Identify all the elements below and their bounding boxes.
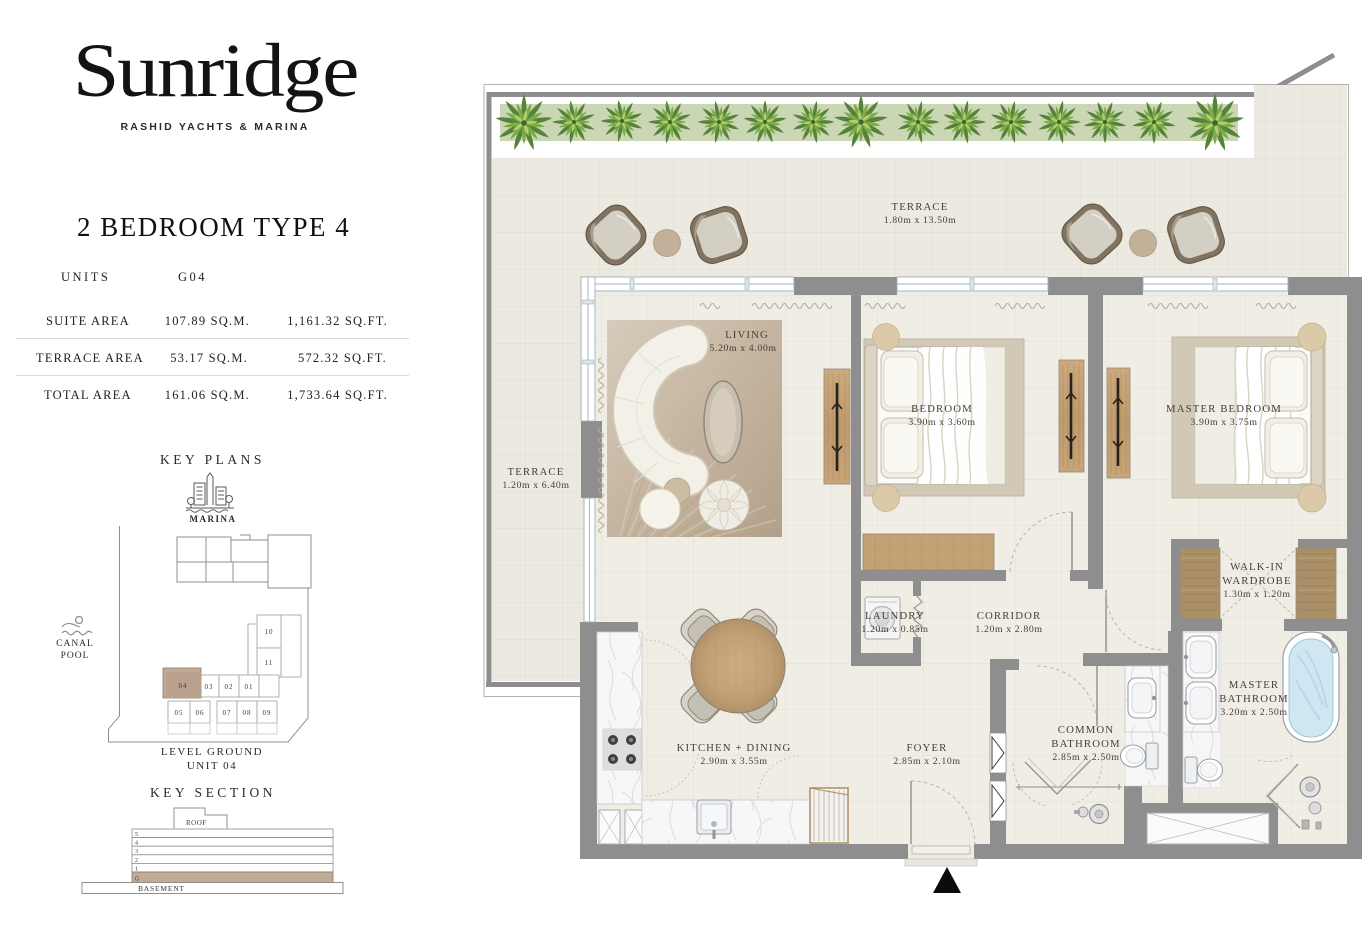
- svg-text:3.90m x 3.75m: 3.90m x 3.75m: [1190, 417, 1257, 428]
- svg-text:TERRACE: TERRACE: [892, 201, 949, 213]
- svg-text:WALK-IN: WALK-IN: [1230, 561, 1284, 573]
- svg-text:FOYER: FOYER: [907, 742, 948, 754]
- svg-text:1.20m x 6.40m: 1.20m x 6.40m: [502, 480, 569, 491]
- svg-text:MASTER: MASTER: [1229, 679, 1279, 691]
- svg-text:MASTER BEDROOM: MASTER BEDROOM: [1166, 403, 1282, 415]
- svg-text:CORRIDOR: CORRIDOR: [977, 610, 1042, 622]
- svg-text:3.20m x 2.50m: 3.20m x 2.50m: [1220, 707, 1287, 718]
- svg-text:3.90m x 3.60m: 3.90m x 3.60m: [908, 417, 975, 428]
- svg-text:WARDROBE: WARDROBE: [1222, 575, 1291, 587]
- svg-text:5.20m x 4.00m: 5.20m x 4.00m: [709, 343, 776, 354]
- svg-text:TERRACE: TERRACE: [508, 466, 565, 478]
- svg-text:2.85m x 2.50m: 2.85m x 2.50m: [1052, 752, 1119, 763]
- svg-text:1.80m x 13.50m: 1.80m x 13.50m: [884, 215, 957, 226]
- svg-text:BATHROOM: BATHROOM: [1051, 738, 1120, 750]
- svg-text:2.85m x 2.10m: 2.85m x 2.10m: [893, 756, 960, 767]
- svg-text:BEDROOM: BEDROOM: [911, 403, 973, 415]
- svg-text:KITCHEN + DINING: KITCHEN + DINING: [677, 742, 792, 754]
- svg-text:BATHROOM: BATHROOM: [1219, 693, 1288, 705]
- svg-text:2.90m x 3.55m: 2.90m x 3.55m: [700, 756, 767, 767]
- svg-text:1.20m x 2.80m: 1.20m x 2.80m: [975, 624, 1042, 635]
- svg-text:LIVING: LIVING: [725, 329, 769, 341]
- svg-text:1.30m x 1.20m: 1.30m x 1.20m: [1223, 589, 1290, 600]
- svg-text:1.20m x 0.85m: 1.20m x 0.85m: [861, 624, 928, 635]
- svg-text:COMMON: COMMON: [1058, 724, 1114, 736]
- svg-text:LAUNDRY: LAUNDRY: [865, 610, 925, 622]
